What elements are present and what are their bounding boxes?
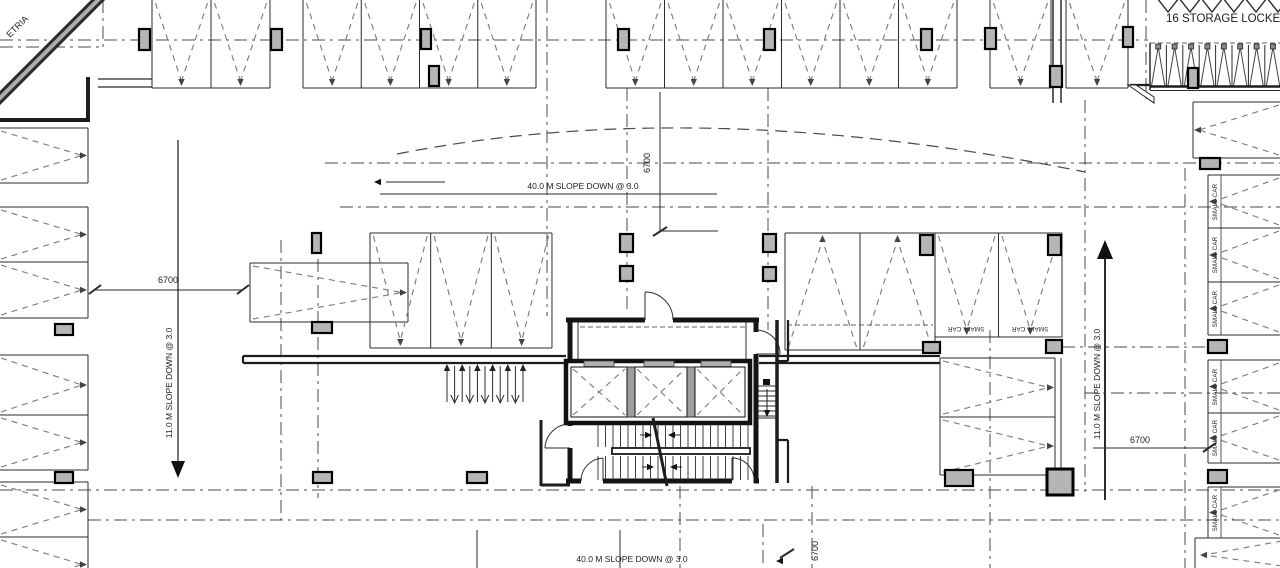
small-car-label: SMALL CAR [1212, 368, 1219, 405]
floor-plan-drawing: 16 STORAGE LOCKERS 40.0 M SLOPE DOWN @ 3… [0, 0, 1280, 568]
dimension-6700-bottom: 6700 [810, 541, 820, 561]
small-car-label: SMALL CAR [1212, 290, 1219, 327]
slope-down-right-label: 11.0 M SLOPE DOWN @ 3.0 [1092, 328, 1102, 439]
bike-racks [444, 364, 526, 403]
ramp-arc [397, 128, 1085, 172]
small-car-label: SMALL CAR [947, 325, 984, 332]
small-car-label: SMALL CAR [1011, 325, 1048, 332]
dimension-6700-center: 6700 [642, 153, 652, 173]
slope-down-left-label: 11.0 M SLOPE DOWN @ 3.0 [164, 327, 174, 438]
dimension-6700-left: 6700 [158, 275, 178, 285]
small-car-label: SMALL CAR [1212, 236, 1219, 273]
slope-down-top-label: 40.0 M SLOPE DOWN @ 3.0 [527, 181, 638, 191]
dimension-6700-right: 6700 [1130, 435, 1150, 445]
slope-down-bottom-label: 40.0 M SLOPE DOWN @ 3.0 [576, 554, 687, 564]
storage-lockers-label: 16 STORAGE LOCKERS [1166, 13, 1280, 25]
small-car-label: SMALL CAR [1212, 494, 1219, 531]
corner-diagonal-label: ETRIA [4, 14, 30, 40]
elevator-stair-core [545, 292, 788, 486]
small-car-label: SMALL CAR [1212, 419, 1219, 456]
small-car-label: SMALL CAR [1212, 183, 1219, 220]
parking-floor-plan: 16 STORAGE LOCKERS 40.0 M SLOPE DOWN @ 3… [0, 0, 1280, 568]
